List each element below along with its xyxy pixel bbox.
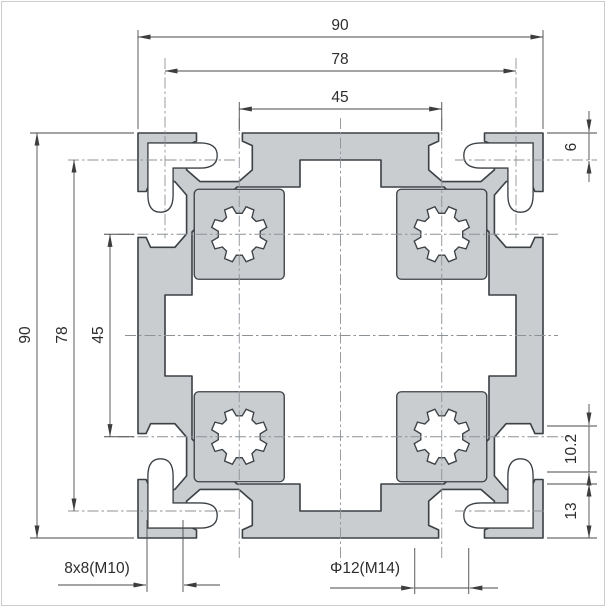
dim-bottom-center-bore-phi12: Φ12(M14): [330, 548, 498, 594]
dim-label-slot-mouth: 10.2: [563, 434, 580, 464]
dim-label-width-90: 90: [331, 17, 349, 34]
dim-label-corner-slot-spec: 8x8(M10): [64, 560, 129, 577]
dim-left-height-78: 78: [54, 160, 74, 511]
dim-label-width-78: 78: [331, 51, 348, 68]
dim-top-width-78: 78: [165, 51, 516, 71]
dim-label-height-45: 45: [90, 326, 107, 343]
dim-label-center-bore-spec: Φ12(M14): [330, 560, 400, 577]
dim-top-width-90: 90: [138, 17, 543, 129]
profile-drawing: 90 78 45 90 78 45 6 10: [0, 0, 606, 607]
dim-label-height-90: 90: [17, 326, 34, 344]
dim-right-corner-width-13: 13: [547, 484, 597, 538]
dim-left-height-90: 90: [17, 133, 134, 538]
dim-label-width-45: 45: [331, 89, 348, 106]
dim-right-slot-mouth-10-2: 10.2: [547, 404, 597, 494]
dim-label-corner-width: 13: [563, 502, 580, 519]
dim-right-corner-offset-6: 6: [547, 111, 597, 182]
dim-label-height-78: 78: [54, 326, 71, 343]
dim-label-corner-offset: 6: [563, 143, 580, 152]
